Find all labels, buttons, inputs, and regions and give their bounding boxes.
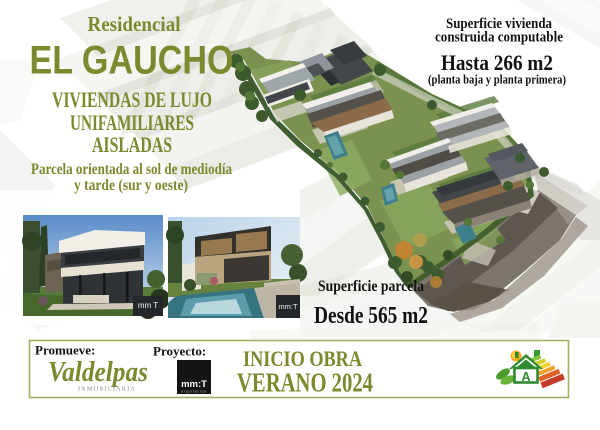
svg-text:Proyecto:: Proyecto: (153, 344, 206, 359)
svg-text:(planta baja y planta primera): (planta baja y planta primera) (428, 72, 566, 87)
svg-text:AISLADAS: AISLADAS (92, 132, 172, 157)
svg-text:Superficie parcela: Superficie parcela (318, 278, 424, 295)
svg-text:A: A (521, 370, 530, 384)
svg-text:mm:T: mm:T (278, 302, 298, 311)
svg-text:construida computable: construida computable (435, 30, 563, 46)
svg-text:EL GAUCHO: EL GAUCHO (30, 39, 234, 83)
svg-text:Parcela orientada al sol de me: Parcela orientada al sol de mediodía (31, 161, 232, 178)
svg-text:VERANO 2024: VERANO 2024 (237, 368, 373, 398)
svg-text:y tarde (sur y oeste): y tarde (sur y oeste) (74, 177, 188, 194)
svg-text:VIVIENDAS DE LUJO: VIVIENDAS DE LUJO (52, 87, 212, 112)
svg-text:Residencial: Residencial (88, 12, 181, 36)
svg-text:mm T: mm T (138, 301, 158, 310)
svg-text:Desde 565 m2: Desde 565 m2 (314, 303, 428, 329)
svg-text:Valdelpas: Valdelpas (48, 356, 148, 388)
svg-text:INMOBILIARIA: INMOBILIARIA (78, 386, 136, 393)
svg-text:arquitectos: arquitectos (181, 390, 207, 394)
svg-text:mm:T: mm:T (181, 379, 207, 390)
